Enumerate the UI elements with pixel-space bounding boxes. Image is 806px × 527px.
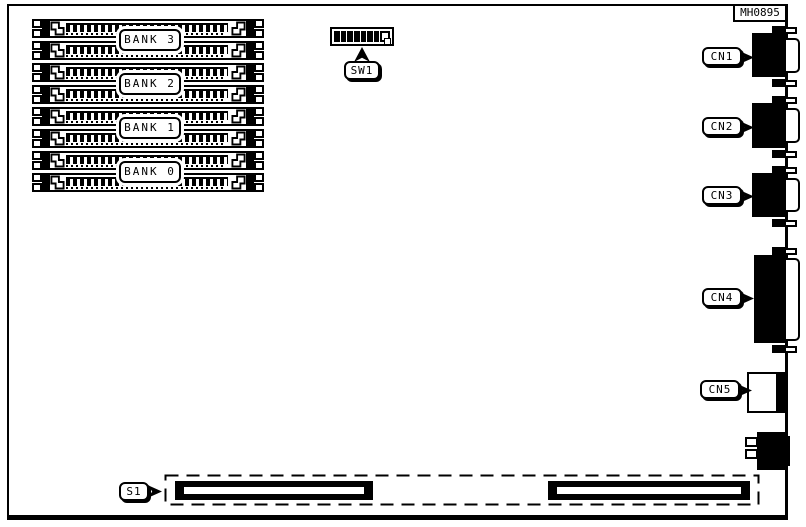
mounting-tab — [784, 151, 797, 158]
sw1-label: SW1 — [344, 61, 380, 80]
mounting-tab — [784, 80, 797, 87]
mount-holes-icon — [32, 19, 42, 38]
cn5-label: CN5 — [700, 380, 740, 399]
mount-holes-icon — [32, 107, 42, 126]
latch-icon — [231, 21, 246, 36]
memory-slot-area: BANK 3 — [32, 19, 264, 192]
latch-icon — [231, 153, 246, 168]
end-bar — [246, 65, 252, 80]
mounting-tab — [784, 248, 797, 255]
jack-icon — [745, 449, 758, 459]
mount-holes-icon — [32, 63, 42, 82]
mounting-tab — [784, 220, 797, 227]
cn4-label: CN4 — [702, 288, 742, 307]
memory-bank-2: BANK 2 — [32, 63, 264, 104]
latch-icon — [50, 109, 65, 124]
bank-label: BANK 1 — [119, 117, 181, 139]
cn1-body — [752, 33, 785, 77]
latch-icon — [231, 65, 246, 80]
end-bar — [246, 43, 252, 58]
memory-bank-1: BANK 1 — [32, 107, 264, 148]
bank-label: BANK 0 — [119, 161, 181, 183]
latch-icon — [231, 175, 246, 190]
edge-slot-bar — [175, 481, 373, 500]
cn1-port — [784, 38, 800, 73]
mounting-tab — [784, 97, 797, 104]
dip-switch-segment — [341, 31, 347, 42]
latch-icon — [50, 87, 65, 102]
end-bar — [246, 87, 252, 102]
cn4-port — [784, 258, 800, 341]
dip-switch-segment — [354, 31, 360, 42]
cn3-body — [752, 173, 785, 217]
mount-holes-icon — [254, 63, 264, 82]
mounting-tab — [784, 27, 797, 34]
mount-holes-icon — [254, 41, 264, 60]
dip-switch-segment — [367, 31, 373, 42]
mount-holes-icon — [32, 151, 42, 170]
mount-holes-icon — [32, 173, 42, 192]
latch-icon — [231, 43, 246, 58]
memory-bank-0: BANK 0 — [32, 151, 264, 192]
edge-slot-bar — [548, 481, 750, 500]
latch-icon — [50, 153, 65, 168]
mount-holes-icon — [254, 129, 264, 148]
bank-label: BANK 2 — [119, 73, 181, 95]
mount-holes-icon — [32, 41, 42, 60]
jack-connector-body — [757, 432, 785, 470]
cn5-port — [777, 372, 785, 413]
mount-holes-icon — [254, 151, 264, 170]
memory-bank-3: BANK 3 — [32, 19, 264, 60]
end-bar — [246, 175, 252, 190]
dip-switch-segment — [334, 31, 340, 42]
cn2-label: CN2 — [702, 117, 742, 136]
cn2-body — [752, 103, 785, 148]
mount-holes-icon — [254, 19, 264, 38]
end-bar — [246, 21, 252, 36]
end-bar — [246, 153, 252, 168]
mount-holes-icon — [254, 173, 264, 192]
dip-switch-segment — [361, 31, 367, 42]
latch-icon — [231, 131, 246, 146]
latch-icon — [50, 43, 65, 58]
part-number: MH0895 — [733, 6, 785, 22]
latch-icon — [231, 87, 246, 102]
mounting-tab — [784, 346, 797, 353]
cn5-body — [747, 372, 778, 413]
cn3-port — [784, 178, 800, 212]
latch-icon — [50, 21, 65, 36]
mounting-tab — [784, 167, 797, 174]
dip-switch-segment — [347, 31, 353, 42]
cn4-body — [754, 255, 785, 343]
mount-holes-icon — [32, 129, 42, 148]
cn1-label: CN1 — [702, 47, 742, 66]
board-diagram: MH0895 — [0, 0, 806, 527]
mount-holes-icon — [32, 85, 42, 104]
cn2-port — [784, 108, 800, 143]
end-bar — [246, 109, 252, 124]
jack-icon — [745, 437, 758, 447]
bank-label: BANK 3 — [119, 29, 181, 51]
end-bar — [246, 131, 252, 146]
latch-icon — [50, 131, 65, 146]
s1-label: S1 — [119, 482, 149, 501]
mount-holes-icon — [254, 85, 264, 104]
latch-icon — [50, 65, 65, 80]
dip-switch-segment — [380, 31, 390, 42]
dip-switch-sw1 — [330, 27, 394, 46]
mount-holes-icon — [254, 107, 264, 126]
latch-icon — [50, 175, 65, 190]
cn3-label: CN3 — [702, 186, 742, 205]
dip-switch-segment — [374, 31, 380, 42]
latch-icon — [231, 109, 246, 124]
